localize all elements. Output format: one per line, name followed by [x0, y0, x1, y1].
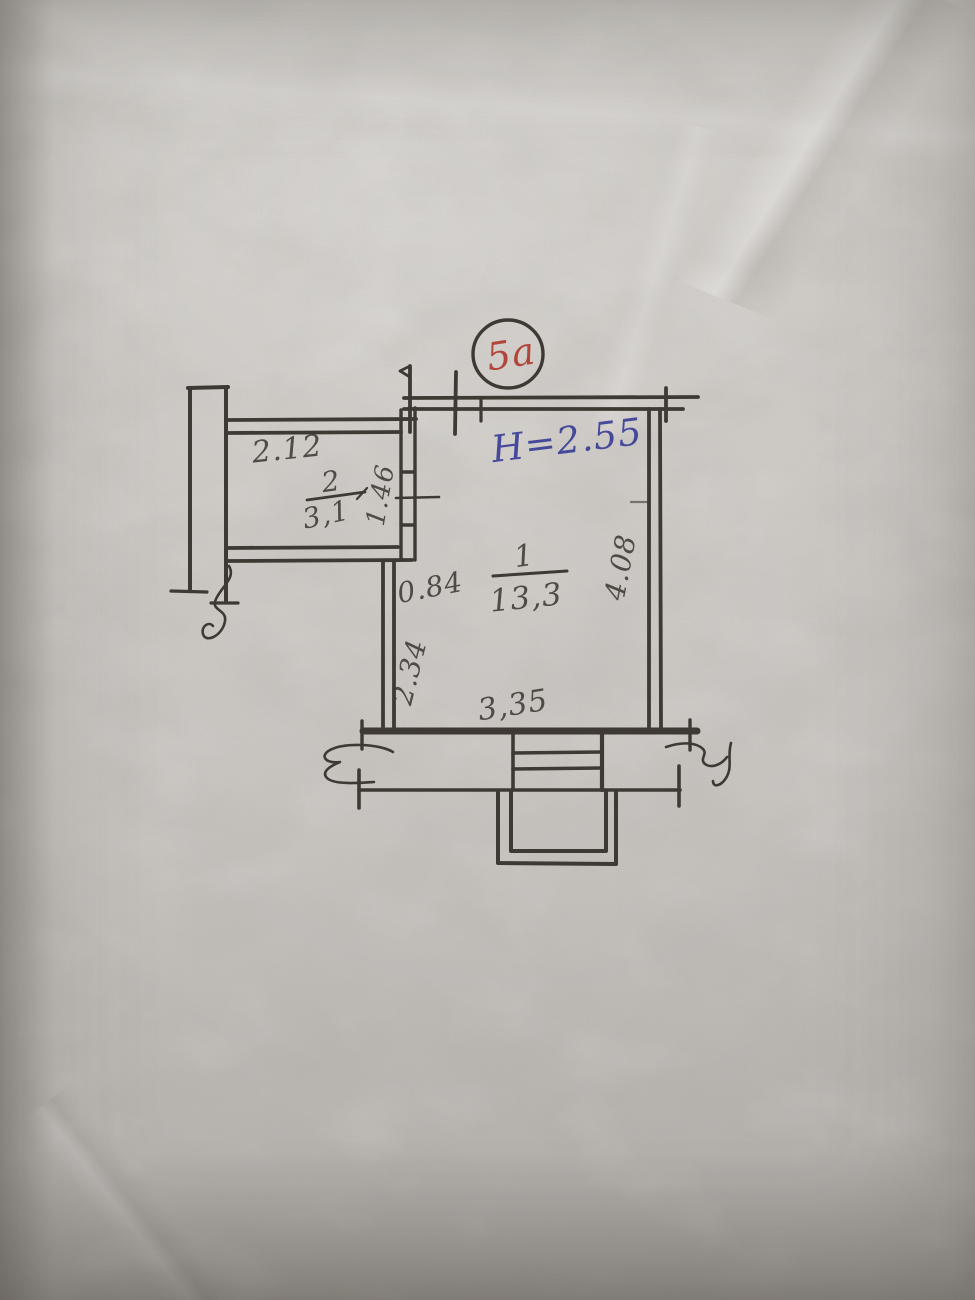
dim-room2-width-label: 2.12 — [249, 428, 324, 470]
apartment-circle: 5a — [473, 320, 543, 388]
left-exterior-wall — [171, 387, 238, 638]
dim-right-depth-label: 4.08 — [598, 531, 643, 603]
dim-line-1-46 — [396, 497, 439, 498]
plan-drawing: 5a H=2.55 2.12 2 3,1 1.46 0.84 1 13,3 4.… — [0, 0, 975, 1300]
dim-offset-label: 0.84 — [394, 565, 465, 610]
porch — [498, 791, 616, 864]
photo-shadow-bottom-edge — [0, 1150, 975, 1300]
dim-bottom-width-label: 3,35 — [475, 683, 550, 729]
apartment-number-label: 5a — [483, 328, 538, 379]
balcony-band — [325, 733, 731, 808]
photo-shadow-left-edge — [0, 0, 54, 1300]
room1-bottom-wall — [362, 720, 697, 750]
floor-plan-photo: 5a H=2.55 2.12 2 3,1 1.46 0.84 1 13,3 4.… — [0, 0, 975, 1300]
dim-room2-depth-label: 1.46 — [361, 462, 401, 528]
room1-number-label: 1 — [512, 538, 537, 575]
steps — [513, 733, 602, 790]
room-partition-window-wall — [396, 408, 439, 560]
room1-area-label: 13,3 — [488, 576, 564, 619]
room1-left-wall — [383, 561, 394, 730]
ceiling-height-note: H=2.55 — [488, 410, 645, 471]
break-mark-right — [666, 743, 731, 785]
